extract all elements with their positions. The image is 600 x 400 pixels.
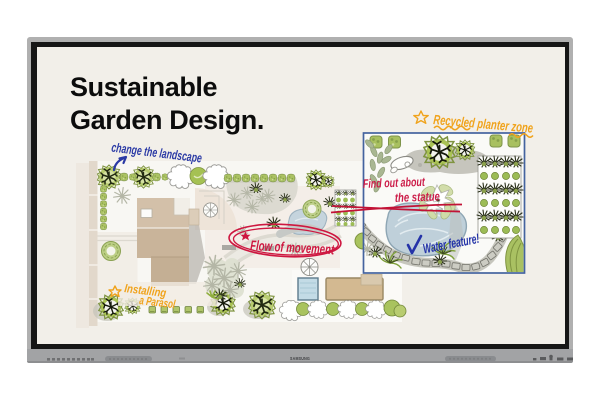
svg-text:SAMSUNG: SAMSUNG [290,356,310,361]
svg-text:Find out about: Find out about [363,175,426,191]
svg-text:the statue: the statue [395,189,440,205]
